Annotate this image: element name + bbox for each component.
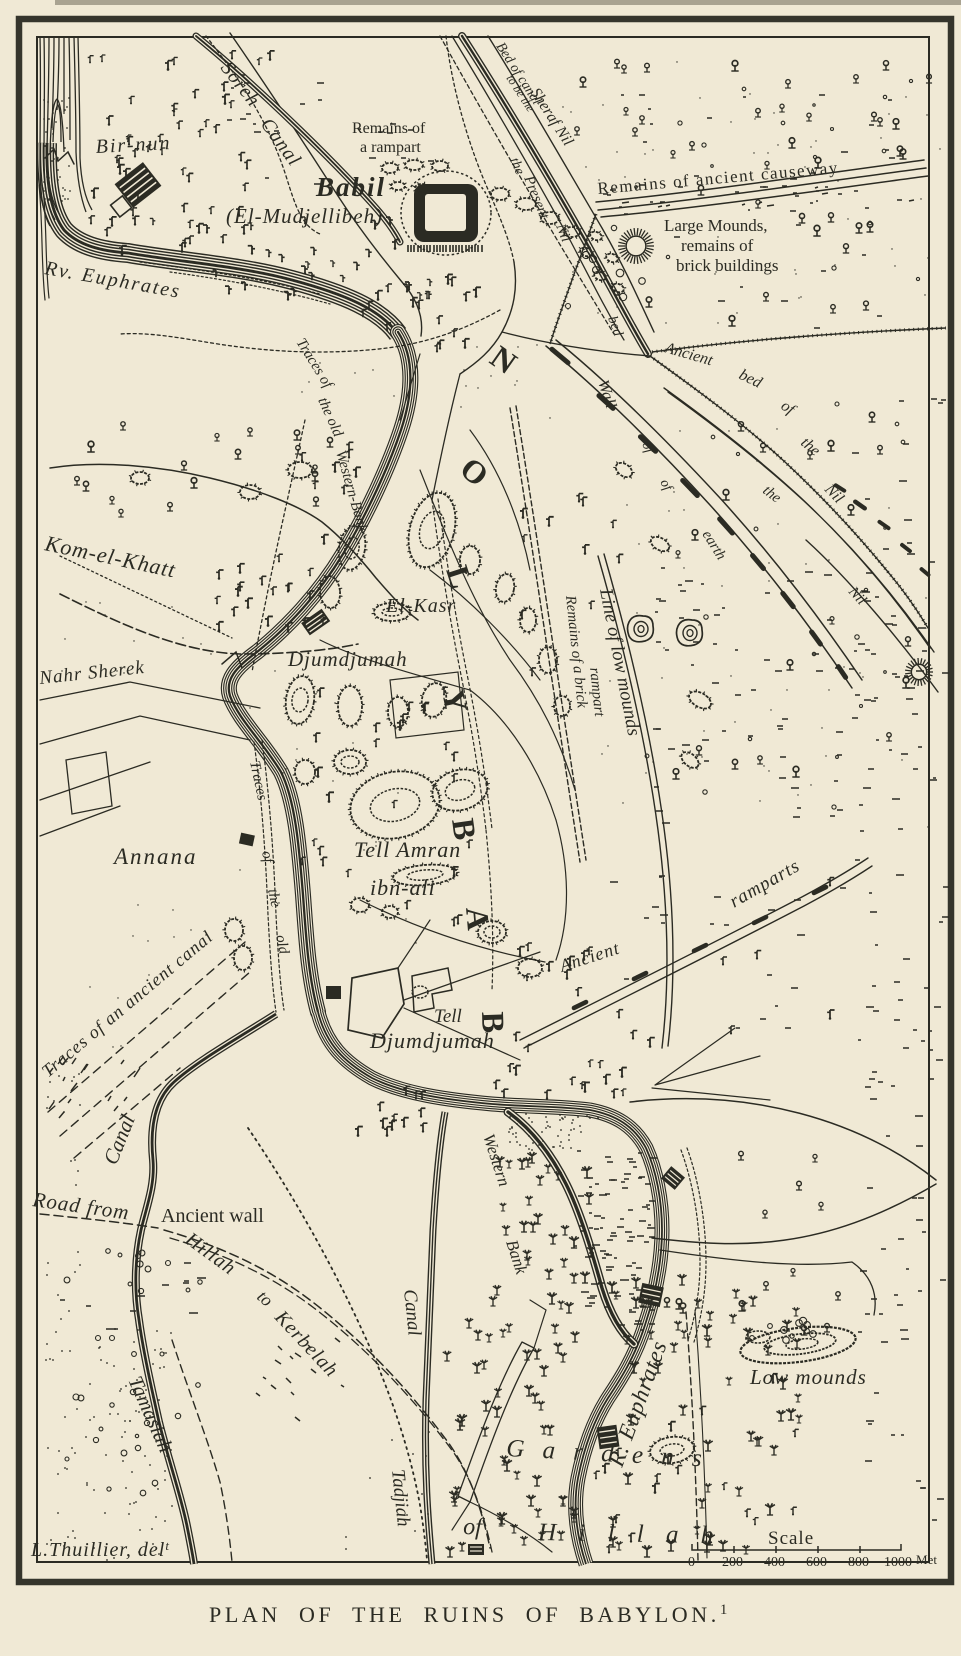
svg-text:0: 0 [688, 1555, 695, 1570]
svg-text:200: 200 [722, 1555, 743, 1570]
svg-text:El-Kasr: El-Kasr [385, 595, 456, 617]
svg-text:(El-Mudjellibeh): (El-Mudjellibeh) [226, 204, 383, 228]
svg-text:600: 600 [806, 1555, 827, 1570]
svg-text:brick buildings: brick buildings [676, 256, 778, 275]
svg-text:A: A [459, 905, 497, 931]
svg-text:Ancient wall: Ancient wall [161, 1205, 264, 1227]
svg-text:Low mounds: Low mounds [749, 1365, 867, 1389]
svg-text:a rampart: a rampart [360, 139, 421, 156]
svg-text:Bir-nun: Bir-nun [95, 132, 172, 158]
svg-text:Met: Met [916, 1552, 937, 1567]
svg-text:remains of: remains of [681, 236, 754, 255]
svg-text:Tell: Tell [434, 1006, 462, 1027]
svg-text:PLAN OF THE RUINS OF BABYLON.1: PLAN OF THE RUINS OF BABYLON.1 [209, 1602, 731, 1627]
svg-text:Tell Amran: Tell Amran [354, 837, 461, 862]
svg-text:Annana: Annana [112, 844, 198, 869]
svg-text:Djumdjumah: Djumdjumah [369, 1028, 495, 1053]
svg-text:H i l l a h: H i l l a h [537, 1519, 722, 1549]
svg-text:800: 800 [848, 1555, 869, 1570]
svg-text:Babil: Babil [315, 172, 386, 202]
svg-text:Djumdjumah: Djumdjumah [287, 647, 408, 671]
svg-text:Remains of: Remains of [352, 120, 426, 137]
svg-text:400: 400 [764, 1555, 785, 1570]
svg-text:Scale: Scale [768, 1528, 814, 1549]
svg-text:ibn-ali: ibn-ali [370, 875, 436, 900]
svg-text:Large Mounds,: Large Mounds, [664, 216, 768, 235]
svg-text:1000: 1000 [884, 1555, 912, 1570]
svg-text:L.Thuillier, delt: L.Thuillier, delt [30, 1538, 170, 1561]
